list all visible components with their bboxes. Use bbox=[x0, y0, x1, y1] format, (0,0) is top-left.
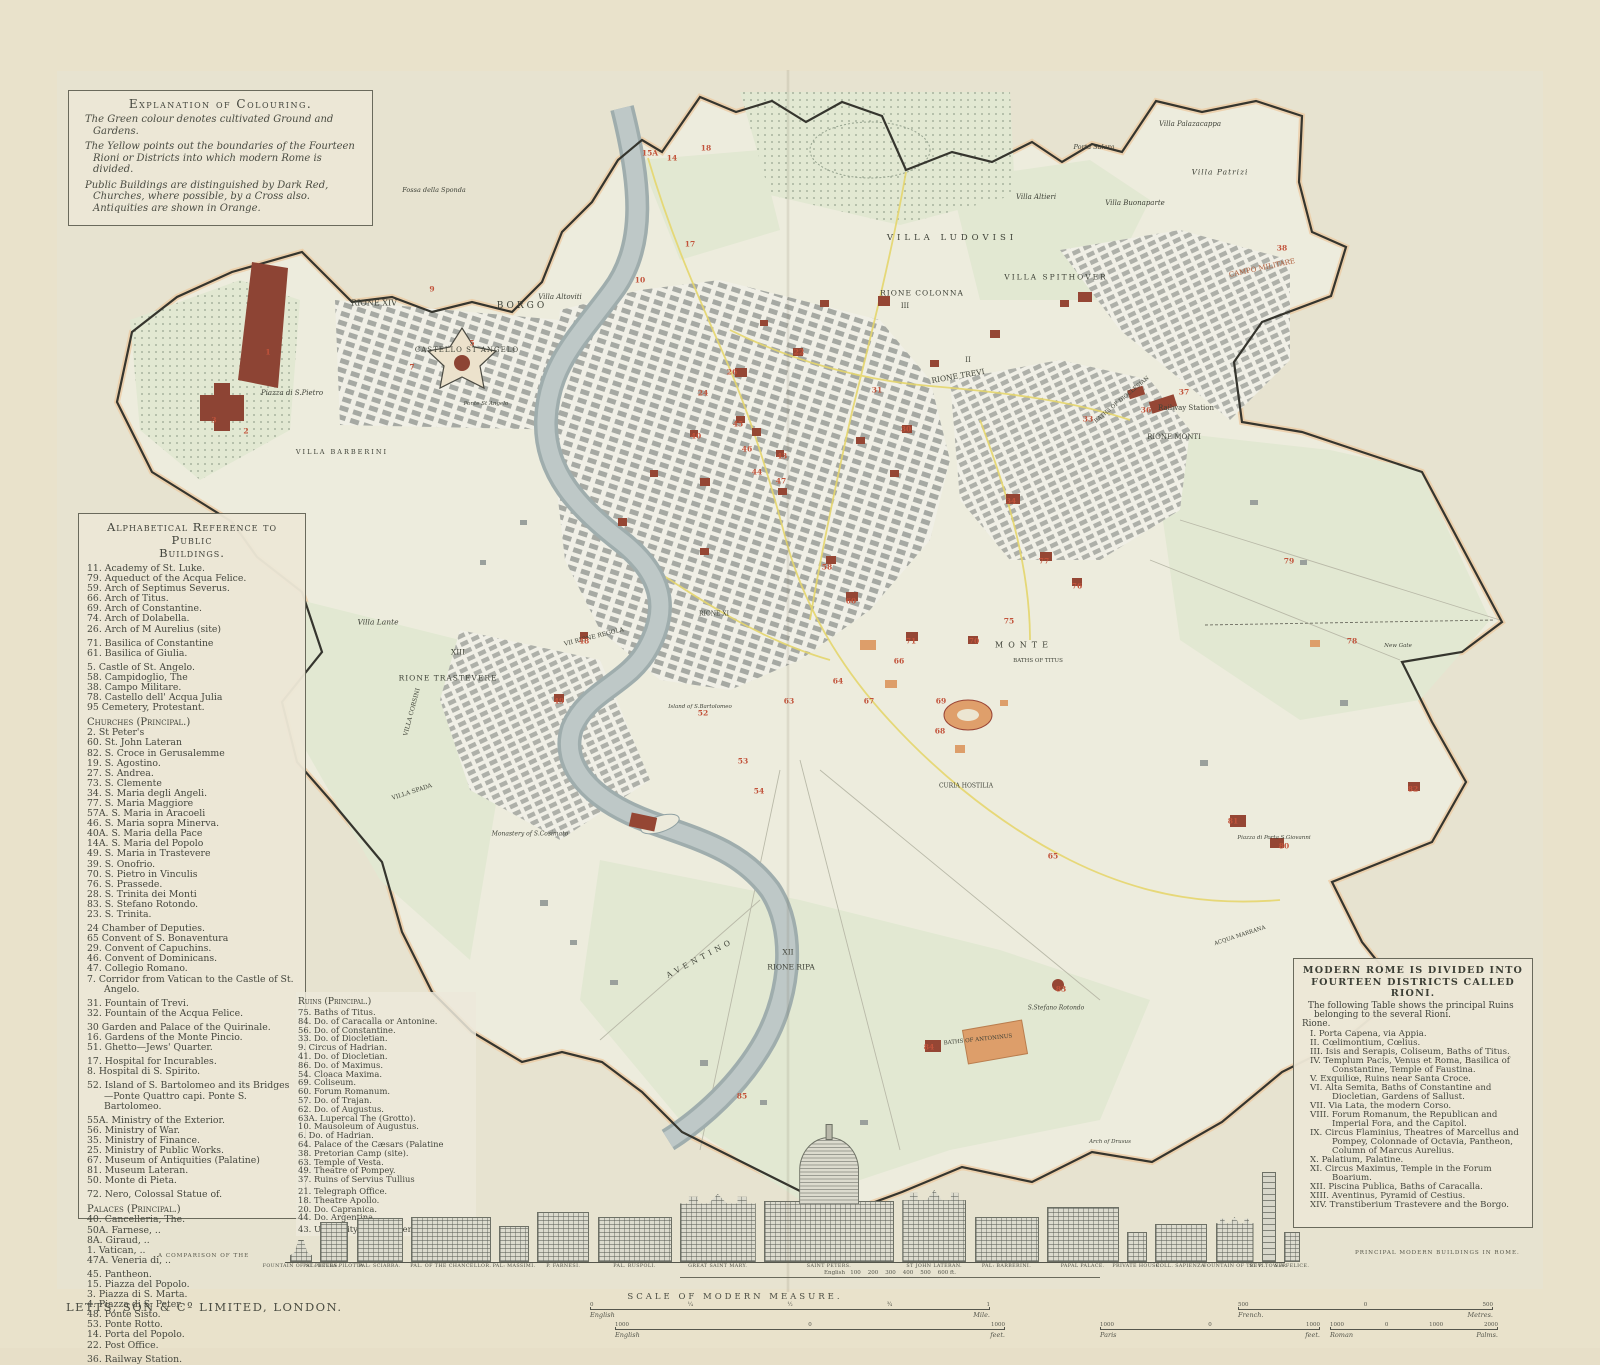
scale-tick: 0 bbox=[1385, 1322, 1389, 1328]
scale-bar-paris-feet: 100001000 Parisfeet. bbox=[1100, 1322, 1320, 1340]
rioni-item: IV. Templum Pacis, Venus et Roma, Basili… bbox=[1302, 1057, 1524, 1075]
scale-line bbox=[1100, 1329, 1320, 1330]
modern-measure-title: SCALE OF MODERN MEASURE. bbox=[560, 1292, 910, 1302]
scale-tick: 1000 bbox=[1429, 1322, 1443, 1328]
reference-item: 23. S. Trinita. bbox=[87, 910, 297, 920]
reference-group: 55A. Ministry of the Exterior.56. Minist… bbox=[87, 1116, 297, 1187]
scale-bar-english-mile: 0¼½¾1 EnglishMile. bbox=[590, 1302, 990, 1320]
scale-tick: 2000 bbox=[1484, 1322, 1498, 1328]
reference-item: 22. Post Office. bbox=[87, 1341, 297, 1351]
reference-item: 61. Basilica of Giulia. bbox=[87, 649, 297, 659]
scale-unit-left: English bbox=[590, 1311, 615, 1319]
reference-item: 47A. Veneria di, .. bbox=[87, 1256, 297, 1266]
rioni-items: I. Porta Capena, via Appia.II. Cœlimonti… bbox=[1302, 1030, 1524, 1210]
alphabetical-reference-box: Alphabetical Reference to Public Buildin… bbox=[78, 513, 306, 1219]
rioni-item: XI. Circus Maximus, Temple in the Forum … bbox=[1302, 1165, 1524, 1183]
reference-group: 30 Garden and Palace of the Quirinale.16… bbox=[87, 1023, 297, 1053]
scale-unit-right: Palms. bbox=[1476, 1331, 1498, 1339]
reference-group: 17. Hospital for Incurables.8. Hospital … bbox=[87, 1057, 297, 1077]
scale-unit-left: English bbox=[615, 1331, 640, 1339]
reference-item: 72. Nero, Colossal Statue of. bbox=[87, 1190, 297, 1200]
rioni-item: VI. Alta Semita, Baths of Constantine an… bbox=[1302, 1084, 1524, 1102]
explanation-paragraph: The Green colour denotes cultivated Grou… bbox=[79, 114, 362, 137]
reference-group: Ruins (Principal.)75. Baths of Titus.84.… bbox=[298, 997, 474, 1184]
scale-tick: 0 bbox=[808, 1322, 812, 1328]
rioni-item: VIII. Forum Romanum, the Republican and … bbox=[1302, 1111, 1524, 1129]
reference-title-line2: Buildings. bbox=[87, 547, 297, 560]
reference-item: 44. Do. Argentina. bbox=[298, 1213, 474, 1222]
reference-group: 5. Castle of St. Angelo.58. Campidoglio,… bbox=[87, 663, 297, 713]
scale-bar-french-metres: 5000500 French.Metres. bbox=[1238, 1302, 1493, 1320]
reference-group: 72. Nero, Colossal Statue of. bbox=[87, 1190, 297, 1200]
reference-item: 37. Ruins of Servius Tullius bbox=[298, 1175, 474, 1184]
rioni-title: MODERN ROME IS DIVIDED INTO FOURTEEN DIS… bbox=[1302, 965, 1524, 1000]
reference-group: Palaces (Principal.)40. Cancelleria, The… bbox=[87, 1204, 297, 1265]
scale-unit-right: Mile. bbox=[973, 1311, 990, 1319]
rioni-intro: The following Table shows the principal … bbox=[1302, 1002, 1524, 1021]
reference-item: 43. University della Sapienza. bbox=[298, 1225, 474, 1234]
reference-group: 43. University della Sapienza. bbox=[298, 1225, 474, 1234]
reference-item: 50. Monte di Pieta. bbox=[87, 1176, 297, 1186]
reference-group: Churches (Principal.)2. St Peter's60. St… bbox=[87, 717, 297, 920]
explanation-paragraph: The Yellow points out the boundaries of … bbox=[79, 141, 362, 176]
reference-title-line1: Alphabetical Reference to Public bbox=[87, 521, 297, 547]
explanation-of-colouring-box: Explanation of Colouring. The Green colo… bbox=[68, 90, 373, 226]
reference-item: 26. Arch of M Aurelius (site) bbox=[87, 625, 297, 635]
scale-tick: 0 bbox=[1364, 1302, 1368, 1308]
reference-group: 52. Island of S. Bartolomeo and its Brid… bbox=[87, 1081, 297, 1111]
scale-tick: 1000 bbox=[615, 1322, 629, 1328]
reference-item: 52. Island of S. Bartolomeo and its Brid… bbox=[87, 1081, 297, 1111]
scale-tick: 500 bbox=[1238, 1302, 1249, 1308]
ruins-list: Ruins (Principal.)75. Baths of Titus.84.… bbox=[296, 992, 476, 1236]
reference-group: 24 Chamber of Deputies.65 Convent of S. … bbox=[87, 924, 297, 995]
publisher-imprint: LETTS, SON & Cº LIMITED, LONDON. bbox=[66, 1300, 343, 1314]
scale-tick: 1000 bbox=[1306, 1322, 1320, 1328]
scale-unit-right: Metres. bbox=[1468, 1311, 1493, 1319]
explanation-paragraphs: The Green colour denotes cultivated Grou… bbox=[79, 114, 362, 214]
explanation-title: Explanation of Colouring. bbox=[79, 97, 362, 111]
reference-item: 60. St. John Lateran bbox=[87, 738, 297, 748]
reference-item: 7. Corridor from Vatican to the Castle o… bbox=[87, 975, 297, 995]
reference-item: 36. Railway Station. bbox=[87, 1355, 297, 1365]
rioni-item: IX. Circus Flaminius, Theatres of Marcel… bbox=[1302, 1129, 1524, 1156]
rioni-districts-box: MODERN ROME IS DIVIDED INTO FOURTEEN DIS… bbox=[1293, 958, 1533, 1228]
scale-tick: ¾ bbox=[887, 1302, 892, 1308]
scale-bar-roman-palms: 1000010002000 RomanPalms. bbox=[1330, 1322, 1498, 1340]
scale-tick: 1000 bbox=[1330, 1322, 1344, 1328]
reference-group: 36. Railway Station. bbox=[87, 1355, 297, 1365]
reference-groups: 11. Academy of St. Luke.79. Aqueduct of … bbox=[87, 564, 297, 1365]
scale-line bbox=[1330, 1329, 1498, 1330]
scale-unit-right: feet. bbox=[1305, 1331, 1320, 1339]
scale-unit-left: French. bbox=[1238, 1311, 1264, 1319]
reference-item: 32. Fountain of the Acqua Felice. bbox=[87, 1009, 297, 1019]
reference-group: 31. Fountain of Trevi.32. Fountain of th… bbox=[87, 999, 297, 1019]
scale-tick: ¼ bbox=[688, 1302, 693, 1308]
reference-group: 21. Telegraph Office.18. Theatre Apollo.… bbox=[298, 1187, 474, 1222]
page-fold-crease bbox=[786, 70, 790, 1292]
scale-bar-english-feet: 100001000 Englishfeet. bbox=[615, 1322, 1005, 1340]
scale-tick: 1000 bbox=[991, 1322, 1005, 1328]
reference-group: 71. Basilica of Constantine61. Basilica … bbox=[87, 639, 297, 659]
scale-unit-right: feet. bbox=[990, 1331, 1005, 1339]
scale-line bbox=[615, 1329, 1005, 1330]
reference-item: 8. Hospital di S. Spirito. bbox=[87, 1067, 297, 1077]
scale-tick: 1000 bbox=[1100, 1322, 1114, 1328]
scale-tick: ½ bbox=[787, 1302, 792, 1308]
scale-tick: 0 bbox=[1208, 1322, 1212, 1328]
atlas-page: LETTS'S POPULAR ATLAS. CITY OF ROME AS I… bbox=[0, 0, 1600, 1348]
reference-item: 51. Ghetto—Jews' Quarter. bbox=[87, 1043, 297, 1053]
scale-unit-left: Paris bbox=[1100, 1331, 1116, 1339]
scale-unit-left: Roman bbox=[1330, 1331, 1353, 1339]
ruins-groups: Ruins (Principal.)75. Baths of Titus.84.… bbox=[298, 997, 474, 1234]
scale-line bbox=[590, 1309, 990, 1310]
scale-line bbox=[1238, 1309, 1493, 1310]
rioni-item: XIV. Transtiberium Trastevere and the Bo… bbox=[1302, 1201, 1524, 1210]
reference-item: 95 Cemetery, Protestant. bbox=[87, 703, 297, 713]
reference-group: 11. Academy of St. Luke.79. Aqueduct of … bbox=[87, 564, 297, 635]
explanation-paragraph: Public Buildings are distinguished by Da… bbox=[79, 180, 362, 215]
